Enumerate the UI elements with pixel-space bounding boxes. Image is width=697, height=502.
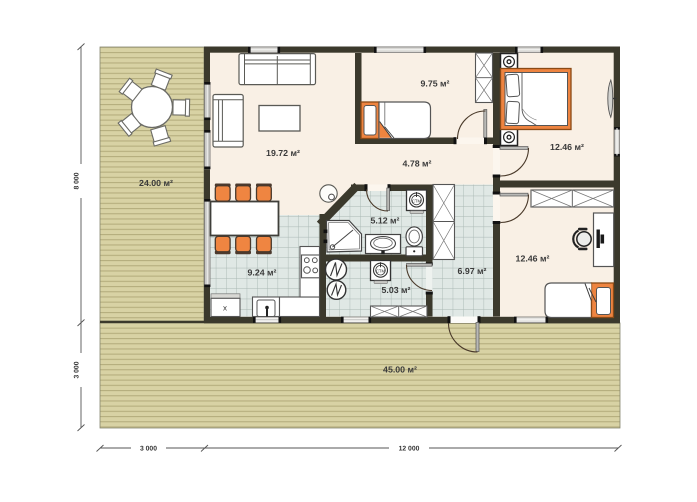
svg-text:СТМ: СТМ (412, 198, 421, 203)
svg-text:4.78 м²: 4.78 м² (402, 159, 431, 169)
svg-text:3 000: 3 000 (140, 446, 157, 453)
svg-text:5.03 м²: 5.03 м² (381, 285, 410, 295)
svg-text:12.46 м²: 12.46 м² (550, 142, 584, 152)
svg-text:9.75 м²: 9.75 м² (420, 79, 449, 89)
svg-text:СТМ: СТМ (376, 269, 385, 274)
svg-text:8 000: 8 000 (74, 172, 81, 189)
svg-text:12.46 м²: 12.46 м² (516, 254, 550, 264)
svg-text:x: x (223, 304, 227, 313)
svg-text:12 000: 12 000 (399, 446, 420, 453)
svg-text:3 000: 3 000 (74, 361, 81, 378)
svg-text:5.12 м²: 5.12 м² (370, 216, 399, 226)
svg-text:45.00 м²: 45.00 м² (383, 365, 417, 375)
svg-text:9.24 м²: 9.24 м² (247, 268, 276, 278)
svg-text:19.72 м²: 19.72 м² (266, 148, 300, 158)
svg-text:24.00 м²: 24.00 м² (139, 178, 173, 188)
svg-text:6.97 м²: 6.97 м² (457, 266, 486, 276)
